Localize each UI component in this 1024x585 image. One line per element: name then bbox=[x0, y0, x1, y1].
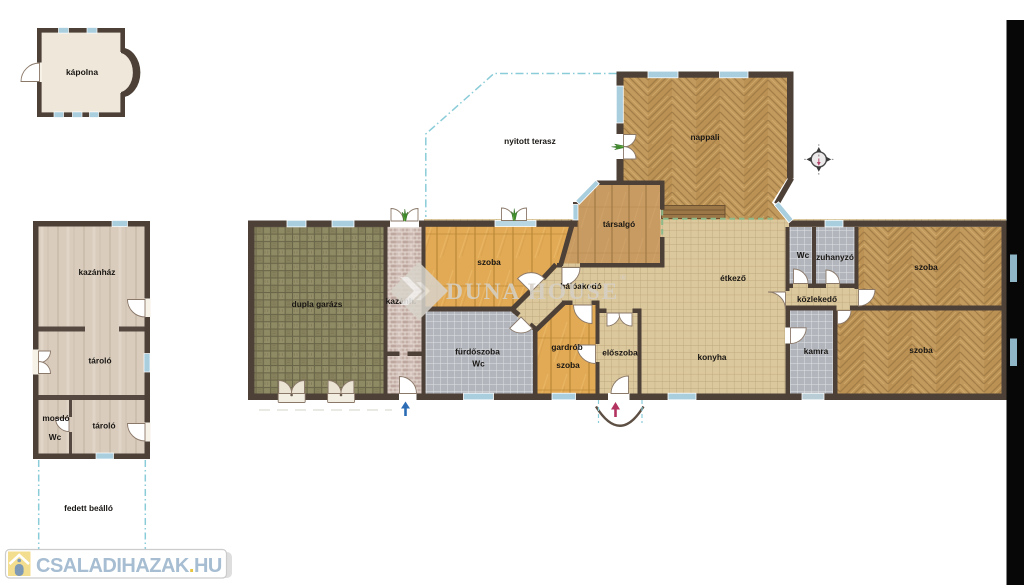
svg-text:dupla garázs: dupla garázs bbox=[292, 299, 343, 309]
svg-text:közlekedő: közlekedő bbox=[797, 294, 837, 304]
svg-text:Wc: Wc bbox=[49, 432, 62, 442]
svg-text:Wc: Wc bbox=[472, 359, 485, 369]
svg-text:előszoba: előszoba bbox=[602, 348, 638, 358]
svg-text:®: ® bbox=[620, 272, 627, 282]
svg-text:nappali: nappali bbox=[690, 132, 719, 142]
svg-text:konyha: konyha bbox=[697, 352, 726, 362]
svg-text:szoba: szoba bbox=[909, 345, 933, 355]
svg-text:tároló: tároló bbox=[88, 356, 111, 366]
svg-text:nyitott terasz: nyitott terasz bbox=[504, 136, 556, 146]
svg-text:gardrób: gardrób bbox=[551, 342, 582, 352]
svg-text:Wc: Wc bbox=[797, 250, 810, 260]
svg-text:kápolna: kápolna bbox=[66, 67, 98, 77]
svg-text:társalgó: társalgó bbox=[603, 219, 635, 229]
svg-text:zuhanyzó: zuhanyzó bbox=[816, 252, 854, 262]
svg-text:kazánház: kazánház bbox=[79, 267, 116, 277]
svg-text:CSALADIHAZAK.HU: CSALADIHAZAK.HU bbox=[36, 555, 222, 577]
svg-text:szoba: szoba bbox=[477, 257, 501, 267]
svg-text:fedett beálló: fedett beálló bbox=[64, 503, 113, 513]
svg-text:szoba: szoba bbox=[556, 360, 580, 370]
svg-text:mosdó: mosdó bbox=[42, 413, 69, 423]
svg-text:fürdőszoba: fürdőszoba bbox=[455, 347, 500, 357]
svg-text:étkező: étkező bbox=[720, 273, 746, 283]
svg-text:szoba: szoba bbox=[914, 262, 938, 272]
svg-text:DUNA HOUSE: DUNA HOUSE bbox=[446, 279, 618, 305]
svg-text:kamra: kamra bbox=[804, 346, 829, 356]
svg-text:tároló: tároló bbox=[92, 421, 115, 431]
